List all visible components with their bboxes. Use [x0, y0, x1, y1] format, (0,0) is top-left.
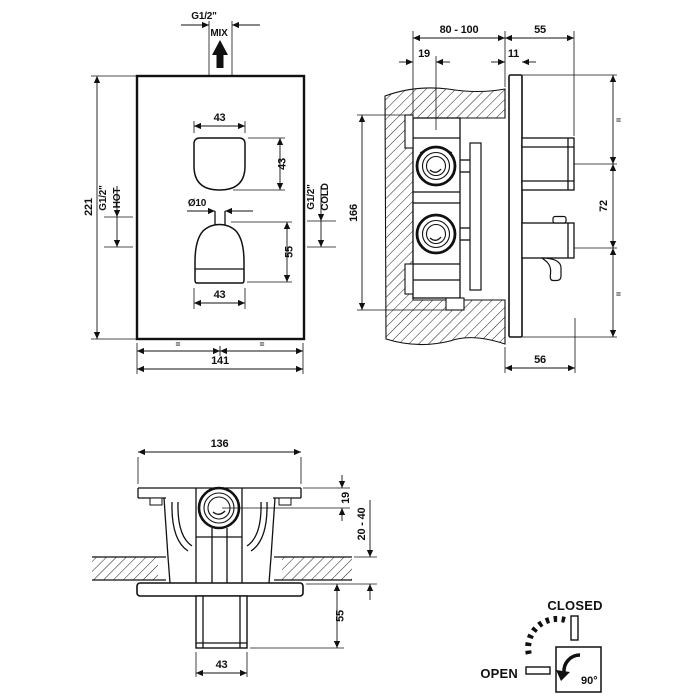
rotation-indicator: CLOSED OPEN 90° [480, 598, 602, 692]
dim-bottom-handle-height-text: 55 [284, 246, 296, 258]
inlet-tab-top [405, 115, 413, 148]
dim-wall-thickness: 20 - 40 [306, 500, 377, 600]
dim-top-handle-width-text: 43 [214, 112, 226, 124]
dim-bottom-protrusion-text: 56 [534, 354, 546, 366]
valve-cartridge-top [417, 147, 455, 185]
bottom-plan-view: 136 19 20 - 40 55 43 [92, 438, 377, 677]
closed-position-tick [571, 616, 578, 640]
dim-bottom-handle-width-text: 43 [214, 289, 226, 301]
equal-mark-bottom: = [616, 289, 621, 299]
wall-section-plan [92, 557, 352, 580]
dim-plate-width-text: 141 [211, 355, 229, 367]
cold-thread-label: G1/2" [306, 184, 317, 210]
equal-mark-top: = [616, 115, 621, 125]
dim-plate-width: = = 141 [137, 339, 303, 374]
open-label: OPEN [480, 666, 518, 681]
dim-body-width-text: 136 [211, 438, 229, 450]
dim-handle-width: 43 [196, 652, 247, 677]
mix-connection: G1/2" MIX [181, 11, 260, 76]
equal-mark-right: = [260, 339, 265, 349]
handle-stem-plan [196, 596, 247, 648]
hot-inlet-callout: G1/2" HOT [98, 185, 133, 247]
dim-handle-spacing: = 72 = [522, 75, 621, 337]
flow-up-arrow-icon [212, 40, 228, 68]
rough-in-body-plan [138, 488, 301, 583]
dim-knob-diameter-text: Ø10 [188, 198, 207, 209]
dim-plate-height: 221 [83, 76, 137, 339]
dim-recess-depth-text: 80 - 100 [440, 24, 479, 36]
dim-inlet-offset-text: 19 [418, 48, 430, 60]
closed-label: CLOSED [547, 598, 602, 613]
dim-body-width: 136 [138, 438, 301, 484]
hot-thread-label: G1/2" [98, 185, 109, 211]
dim-protrusion-text: 55 [534, 24, 546, 36]
thermostat-handle-front [194, 138, 245, 190]
mix-thread-label: G1/2" [191, 11, 217, 22]
dim-handle-spacing-text: 72 [598, 200, 610, 212]
dim-valve-offset-text: 19 [340, 492, 352, 504]
side-view: 80 - 100 55 19 11 166 [348, 24, 621, 373]
thermostat-handle-side [522, 138, 574, 190]
hot-label: HOT [112, 188, 123, 209]
dim-handle-width-text: 43 [216, 659, 228, 671]
open-position-tick [526, 667, 550, 674]
valve-cartridge-bottom [417, 215, 455, 253]
dim-plate-gap-text: 11 [508, 48, 519, 60]
dim-plate-height-text: 221 [83, 198, 95, 216]
dim-plate-gap: 11 [491, 48, 536, 62]
front-view: G1/2" MIX 221 43 43 [83, 11, 336, 374]
dim-handle-protrusion-text: 55 [335, 610, 347, 622]
rotation-angle-label: 90° [581, 675, 598, 687]
equal-mark-left: = [176, 339, 181, 349]
cold-label: COLD [320, 183, 331, 211]
volume-handle-front [195, 225, 244, 284]
volume-handle-side [522, 217, 574, 281]
technical-drawing-canvas: G1/2" MIX 221 43 43 [0, 0, 700, 700]
dim-top-handle-height-text: 43 [277, 158, 289, 170]
outlet-tab-bottom [446, 298, 464, 310]
mix-label: MIX [210, 28, 228, 39]
cold-inlet-callout: G1/2" COLD [306, 183, 336, 247]
trim-plate-plan [137, 583, 303, 596]
dim-wall-thickness-text: 20 - 40 [356, 508, 368, 541]
trim-plate-side [509, 75, 522, 337]
dim-body-height-text: 166 [348, 204, 360, 222]
mounting-bracket-side [470, 143, 481, 290]
rough-in-body-side [413, 118, 460, 298]
drawing-svg: G1/2" MIX 221 43 43 [0, 0, 700, 700]
inlet-tab-bottom [405, 264, 413, 294]
